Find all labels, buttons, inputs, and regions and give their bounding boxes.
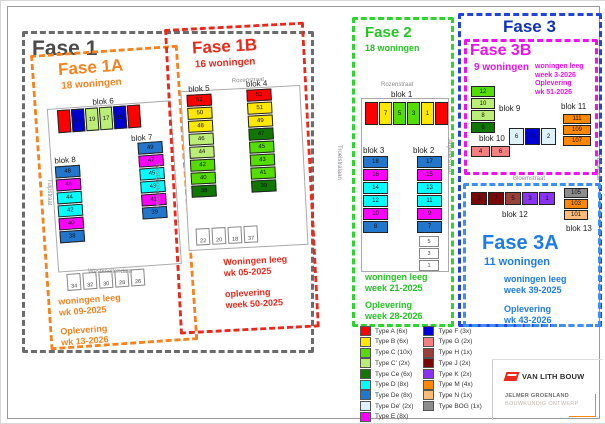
fase3a-status-line3: Oplevering [504,304,552,315]
legend-label: Type N (1x) [438,392,472,399]
housing-unit: 12 [363,195,388,207]
legend-label: Type M (4x) [438,381,472,388]
fase3b-status-line3: Oplevering [535,80,584,89]
designer-role: BOUWKUNDIG ONTWERP [505,401,579,407]
company-name: VAN LITH BOUW [522,372,584,381]
fase3a-count: 11 woningen [484,256,550,268]
blok12-label: blok 12 [502,210,528,219]
housing-unit: 109 [563,125,591,135]
legend-label: Type BOG (1x) [438,403,481,410]
legend-item: Type K (2x) [423,370,481,379]
housing-unit: 46 [189,133,215,146]
legend-column-right: Type F (3x)Type G (2x)Type H (1x)Type J … [423,327,481,421]
legend-swatch [423,326,434,336]
drawing-sheet: Fase 1 Fase 1A 18 woningen blok 6 211917… [7,6,600,419]
housing-unit: 107 [563,136,591,146]
housing-unit: 8 [471,110,495,121]
fase2-status-line1: woningen leeg [365,272,428,283]
housing-unit: 7 [379,102,392,125]
legend-swatch [360,390,371,400]
blok10-label: blok 10 [479,134,505,143]
lot-cell: 5 [419,236,439,247]
housing-unit: 46 [56,178,82,192]
blok3: 18161412108 [363,156,388,233]
blok13: 105103101 [564,188,588,220]
housing-unit: 10 [363,208,388,220]
housing-unit: 44 [189,146,215,159]
fase2-status-leeg: woningen leeg week 21-2025 [365,272,428,294]
housing-unit: 40 [191,171,217,184]
housing-unit [57,109,72,133]
legend-label: Type D (8x) [375,381,409,388]
housing-unit: 38 [191,184,217,197]
legend-swatch [360,358,371,368]
blok4: 5351494745434139 [246,88,276,192]
fase3-title: Fase 3 [503,17,556,37]
housing-unit: 5 [393,102,406,125]
fase2-boundary: Fase 2 18 woningen Rozenstraat blok 1 75… [352,17,454,327]
housing-unit: 5 [505,192,521,205]
blok3-label: blok 3 [363,146,384,155]
fase3a-title: Fase 3A [482,232,559,255]
blok11-label: blok 11 [561,102,586,111]
housing-unit: 48 [188,120,214,133]
housing-unit: 50 [187,107,213,120]
fase1b-boundary: Fase 1B 16 woningen Rozenstraat blok 5 5… [164,22,320,335]
housing-unit: 14 [363,182,388,194]
fase3b-boundary: Fase 3B 9 woningen woningen leeg week 3-… [464,39,598,175]
lot-cell: 20 [211,227,226,245]
legend-swatch [360,369,371,379]
housing-unit: 43 [250,153,276,166]
legend-label: Type K (2x) [438,371,471,378]
housing-unit: 39 [251,179,277,192]
street-tulpstraat: Tulpstraat [46,179,52,205]
housing-unit [365,102,378,125]
housing-unit: 19 [85,107,100,131]
fase3a-status-line1: woningen leeg [504,274,567,285]
legend-item: Type A (6x) [360,327,413,336]
housing-unit: 42 [190,159,216,172]
housing-unit: 105 [564,188,588,198]
fase1a-status-oplevering: Oplevering wk 13-2026 [60,323,109,348]
blok2: 1715131197 [417,156,442,233]
housing-unit: 15 [417,169,442,181]
lot-cell: 18 [227,226,242,244]
title-block: VAN LITH BOUW JELMER GROENLAND BOUWKUNDI… [492,359,603,420]
housing-unit: 4 [471,146,490,157]
housing-unit: 7 [417,221,442,233]
legend-item: Type De (8x) [360,391,413,400]
fase3-boundary: Fase 3 Fase 3B 9 woningen woningen leeg … [458,13,602,327]
housing-unit: 18 [363,156,388,168]
legend-item: Type F (3x) [423,327,481,336]
housing-unit: 51 [247,101,273,114]
legend-label: Type C' (2x) [375,360,410,367]
housing-unit: 2 [541,128,556,145]
housing-unit: 17 [99,106,114,130]
legend-label: Type C (10x) [375,349,412,356]
van-lith-logo-icon [504,372,520,381]
housing-unit: 3 [407,102,420,125]
housing-unit: 3 [522,192,538,205]
fase1b-status-line4: week 50-2025 [225,297,283,311]
fase2-lots: 531 [419,236,439,271]
fase2-status-line2: week 21-2025 [365,283,428,294]
fase2-status-oplevering: Oplevering week 28-2026 [365,300,423,322]
fase3a-status-leeg: woningen leeg week 39-2025 [504,274,567,296]
housing-unit: 9 [471,192,487,205]
blok8: 484644424038 [55,165,85,244]
legend-label: Type G (2x) [438,338,472,345]
housing-unit: 21 [71,108,86,132]
blok11: 111109107 [563,114,591,146]
legend-label: Type De' (2x) [375,403,413,410]
housing-unit: 111 [563,114,591,124]
legend-item: Type D (8x) [360,380,413,389]
fase1b-lots: 22201837 [195,225,258,245]
housing-unit: 15 [113,105,128,129]
housing-unit: 16 [363,169,388,181]
housing-unit: 12 [471,86,495,97]
blok2-label: blok 2 [413,146,434,155]
lot-cell: 22 [195,228,210,246]
street-rozenstraat-2: Rozenstraat [381,82,413,88]
housing-unit: 42 [58,204,84,218]
fase3b-center-cluster: 642 [509,128,556,145]
housing-unit: 1 [421,102,434,125]
fase3b-status: woningen leeg week 3-2026 Oplevering wk … [535,63,584,97]
housing-unit [435,102,448,125]
fase3a-status-line4: wk 43-2026 [504,315,552,326]
blok10: 46 [471,146,510,157]
legend-label: Type J (2x) [438,360,470,367]
housing-unit: 10 [471,98,495,109]
fase3a-status-oplevering: Oplevering wk 43-2026 [504,304,552,326]
blok5: 5250484644424038 [186,94,216,198]
legend-swatch [423,337,434,347]
legend-item: Type E (8x) [360,413,413,422]
housing-unit: 13 [417,182,442,194]
fase1b-status-oplevering: oplevering week 50-2025 [225,286,284,311]
fase3b-count: 9 woningen [474,62,529,73]
housing-unit: 6 [491,146,510,157]
housing-unit: 1 [539,192,555,205]
housing-unit: 6 [509,128,524,145]
housing-unit: 44 [57,191,83,205]
legend-swatch [423,401,434,411]
housing-unit: 45 [249,140,275,153]
legend-swatch [360,326,371,336]
street-bloemstraat: Bloemstraat [513,176,545,182]
blok1: 7531 [365,102,448,125]
housing-unit: 45 [139,167,165,181]
designer-name: JELMER GROENLAND [505,393,569,399]
blok5-label: blok 5 [188,84,210,94]
legend-column-left: Type A (6x)Type B (6x)Type C (10x)Type C… [360,327,413,421]
legend-item: Type M (4x) [423,380,481,389]
blok6-label: blok 6 [92,96,114,106]
blok8-label: blok 8 [54,155,76,165]
lot-cell: 3 [419,248,439,259]
legend-swatch [423,348,434,358]
legend-item: Type BOG (1x) [423,402,481,411]
fase3b-status-line1: woningen leeg [535,63,584,72]
housing-unit: 48 [55,165,81,179]
legend-label: Type E (8x) [375,413,408,420]
legend-item: Type J (2x) [423,359,481,368]
lot-cell: 1 [419,260,439,271]
street-troelstralaan: Troelstralaan [336,145,342,180]
legend-item: Type Ce (6x) [360,370,413,379]
fase2-status-line3: Oplevering [365,300,423,311]
legend-item: Type H (1x) [423,348,481,357]
fase1b-count: 16 woningen [195,56,256,70]
housing-unit [127,104,142,128]
legend-label: Type Ce (6x) [375,371,412,378]
legend-swatch [360,337,371,347]
legend-label: Type B (6x) [375,338,408,345]
fase1b-title: Fase 1B [192,35,258,58]
company-logo: VAN LITH BOUW [505,372,584,381]
legend-label: Type De (8x) [375,392,412,399]
legend-label: Type A (6x) [375,328,408,335]
type-legend: Type A (6x)Type B (6x)Type C (10x)Type C… [360,327,494,421]
legend-item: Type G (2x) [423,338,481,347]
blok1-label: blok 1 [391,90,412,99]
fase3b-title: Fase 3B [470,42,531,60]
housing-unit: 4 [525,128,540,145]
legend-swatch [423,358,434,368]
housing-unit: 47 [138,154,164,168]
legend-item: Type C' (2x) [360,359,413,368]
legend-item: Type C (10x) [360,348,413,357]
legend-label: Type H (1x) [438,349,472,356]
legend-label: Type F (3x) [438,328,471,335]
fase3b-status-line4: wk 51-2026 [535,89,584,98]
fase1a-status-leeg: woningen leeg wk 09-2025 [58,292,122,318]
legend-swatch [360,401,371,411]
legend-item: Type N (1x) [423,391,481,400]
legend-swatch [360,380,371,390]
corner-bracket [569,394,596,417]
legend-swatch [423,380,434,390]
street-westknollendam-v: Westknollendam [154,163,160,207]
housing-unit: 6 [471,122,495,133]
site-plan-canvas: Fase 1 Fase 1A 18 woningen blok 6 211917… [0,0,605,424]
blok13-label: blok 13 [566,224,592,233]
blok7: 494745434139 [137,141,167,220]
housing-unit: 49 [248,114,274,127]
legend-swatch [360,348,371,358]
lot-cell: 37 [243,225,258,243]
lot-cell: 26 [130,269,145,287]
street-zuideinde: Zuideinde [595,154,601,180]
street-westknollendam-h: Westknollendam [88,269,132,275]
legend-item: Type B (6x) [360,338,413,347]
legend-item: Type De' (2x) [360,402,413,411]
housing-unit: 43 [140,180,166,194]
housing-unit: 38 [59,230,85,244]
blok9: 121086 [471,86,495,133]
street-anjelierstraat: Anjelierstraat [446,139,452,174]
housing-unit: 103 [564,199,588,209]
housing-unit: 53 [246,88,272,101]
fase2-status-line4: week 28-2026 [365,311,423,322]
housing-unit: 9 [417,208,442,220]
housing-unit: 101 [564,210,588,220]
fase1b-status-leeg: Woningen leeg wk 05-2025 [223,254,288,279]
housing-unit: 40 [58,217,84,231]
housing-unit: 47 [248,127,274,140]
fase3a-boundary: 97531 blok 12 105103101 blok 13 Fase 3A … [463,183,601,327]
fase3a-status-line2: week 39-2025 [504,285,567,296]
housing-unit: 41 [250,166,276,179]
blok12: 97531 [471,192,555,205]
fase3b-status-line2: week 3-2026 [535,72,584,81]
lot-cell: 34 [66,273,81,291]
housing-unit: 17 [417,156,442,168]
housing-unit: 8 [363,221,388,233]
legend-swatch [423,369,434,379]
housing-unit: 52 [186,94,212,107]
blok9-label: blok 9 [499,104,520,113]
housing-unit: 39 [142,206,168,220]
legend-swatch [423,390,434,400]
blok4-label: blok 4 [246,79,268,89]
housing-unit: 11 [417,195,442,207]
legend-swatch [360,412,371,422]
housing-unit: 49 [137,141,163,155]
housing-unit: 7 [488,192,504,205]
fase2-title: Fase 2 [365,24,412,41]
fase1b-status-line2: wk 05-2025 [224,265,288,279]
fase2-count: 18 woningen [365,43,420,53]
fase1a-status-line4: wk 13-2026 [61,334,109,348]
